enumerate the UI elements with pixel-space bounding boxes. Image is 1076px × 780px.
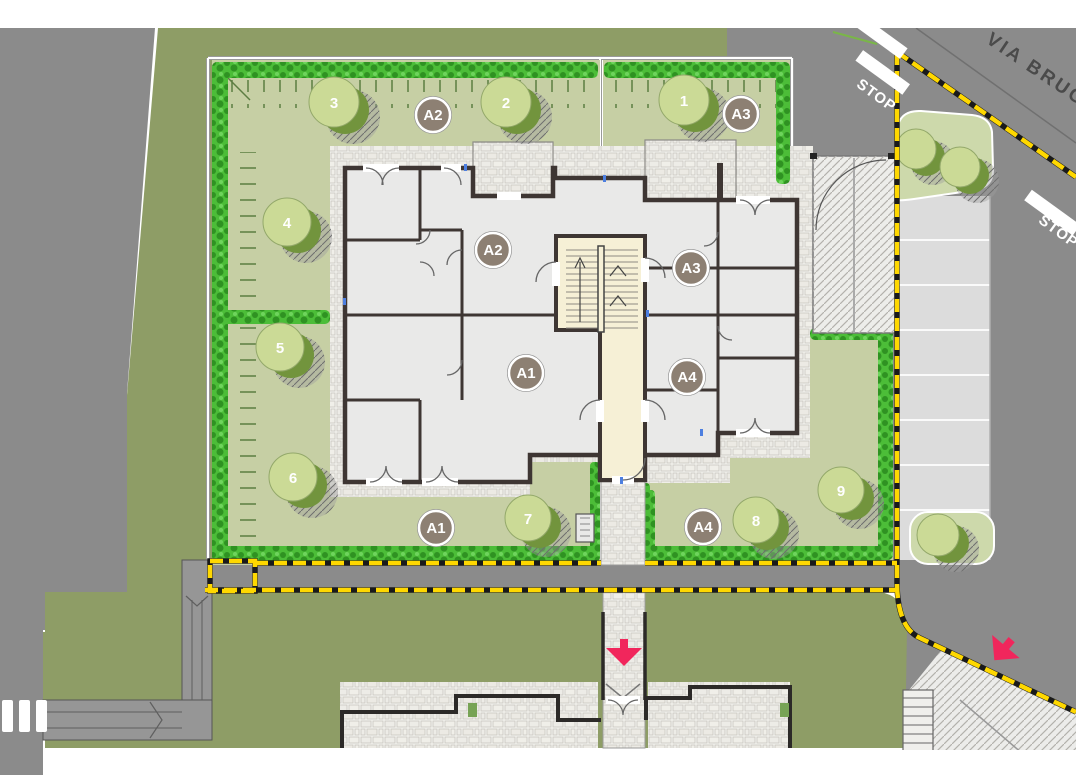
bottom-margin xyxy=(48,750,1076,780)
label-text: A2 xyxy=(483,242,502,259)
gate-post-west xyxy=(810,153,817,159)
tree-number: 1 xyxy=(680,93,688,110)
label-garden-a3: A3 xyxy=(723,96,760,133)
hedge-a4-east xyxy=(878,333,893,560)
label-interior-a3: A3 xyxy=(673,250,710,287)
lower-plaza-east xyxy=(648,682,790,748)
stair-rail xyxy=(598,246,604,332)
label-interior-a1: A1 xyxy=(508,355,545,392)
window-tick xyxy=(700,429,703,436)
tree-number: 6 xyxy=(289,470,297,487)
door-gap xyxy=(596,400,604,422)
terrace-divider-wall xyxy=(717,163,723,200)
site-plan-page: 1 2 3 4 5 6 xyxy=(0,0,1076,780)
label-garden-a2: A2 xyxy=(415,97,452,134)
hedge-a3-east xyxy=(776,62,790,184)
window-tick xyxy=(620,477,623,484)
crosswalk xyxy=(2,700,47,732)
label-text: A1 xyxy=(426,520,445,537)
label-text: A2 xyxy=(423,107,442,124)
tree-canopy xyxy=(940,147,980,187)
crosswalk-bar xyxy=(36,700,47,732)
tree-canopy xyxy=(917,514,959,556)
site-plan-drawing: 1 2 3 4 5 6 xyxy=(0,0,1076,780)
tree-number: 2 xyxy=(502,95,510,112)
lower-building xyxy=(340,682,790,748)
window-tick xyxy=(603,175,606,182)
path-entrance-south xyxy=(603,592,645,748)
window-tick xyxy=(646,310,649,317)
hedge-divider-west xyxy=(212,310,330,324)
label-interior-a2: A2 xyxy=(475,232,512,269)
door-gap xyxy=(552,262,560,286)
parking-area xyxy=(897,196,990,560)
planter-east xyxy=(780,703,789,717)
building xyxy=(343,140,797,486)
label-text: A4 xyxy=(693,519,713,536)
label-garden-a1: A1 xyxy=(418,510,455,547)
label-garden-a4: A4 xyxy=(685,509,722,546)
door-gap xyxy=(641,258,649,282)
planter-west xyxy=(468,703,477,717)
sidewalk-horizontal xyxy=(43,700,212,740)
hedge-top-a2 xyxy=(212,62,598,78)
label-interior-a4: A4 xyxy=(669,359,706,396)
label-text: A3 xyxy=(731,106,750,123)
tree-number: 7 xyxy=(524,511,532,528)
tree-number: 5 xyxy=(276,340,284,357)
window-tick xyxy=(464,164,467,171)
driveway-ramp xyxy=(810,153,895,333)
tree-number: 9 xyxy=(837,483,845,500)
top-margin xyxy=(0,0,1076,28)
gate-post-east xyxy=(888,153,895,159)
door-gap xyxy=(497,192,521,200)
ticks-garden-west xyxy=(230,152,256,552)
terrace-north-west xyxy=(473,142,553,198)
label-text: A4 xyxy=(677,369,697,386)
hedge-top-a3 xyxy=(604,62,788,78)
parking-strip xyxy=(897,196,990,560)
label-text: A3 xyxy=(681,260,700,277)
crosswalk-bar xyxy=(2,700,13,732)
window-tick xyxy=(343,298,346,305)
crosswalk-bar xyxy=(19,700,30,732)
tree-number: 3 xyxy=(330,95,338,112)
tree-number: 4 xyxy=(283,215,292,232)
label-text: A1 xyxy=(516,365,535,382)
door-gap xyxy=(641,400,649,422)
tree-number: 8 xyxy=(752,513,760,530)
tree-canopy xyxy=(896,129,936,169)
